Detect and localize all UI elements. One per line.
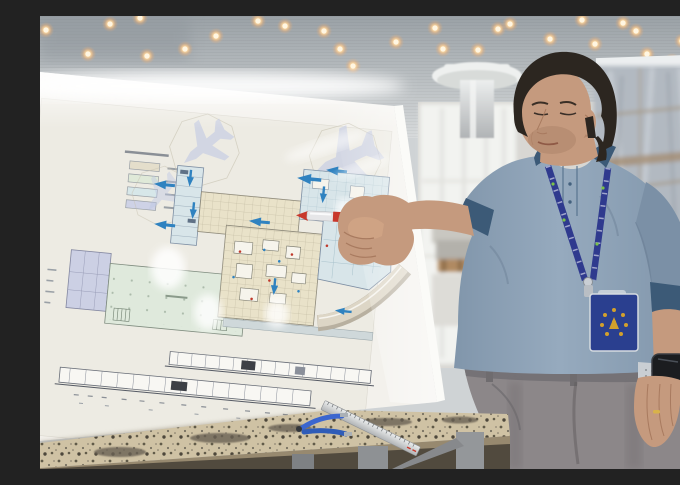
plan-board — [40, 66, 445, 468]
construction-site-photo — [40, 16, 680, 469]
board-print — [40, 66, 440, 468]
badge — [590, 290, 638, 351]
photo-canvas — [40, 16, 680, 469]
gold-ring — [653, 410, 660, 414]
